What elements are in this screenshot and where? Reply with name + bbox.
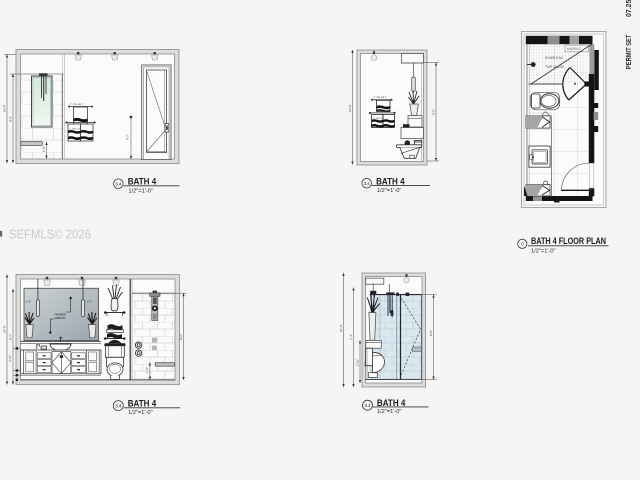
svg-text:BATH 4: BATH 4 bbox=[128, 399, 157, 409]
svg-text:8'-0": 8'-0" bbox=[429, 330, 433, 336]
svg-text:1/2"=1'-0": 1/2"=1'-0" bbox=[128, 410, 153, 416]
svg-text:2" TWL BR 2": 2" TWL BR 2" bbox=[70, 104, 84, 106]
svg-text:MARBLE: MARBLE bbox=[567, 47, 582, 51]
svg-text:2" TWL 24": 2" TWL 24" bbox=[70, 128, 81, 130]
svg-text:BATH 4 FLOOR PLAN: BATH 4 FLOOR PLAN bbox=[531, 236, 606, 246]
svg-text:MIRROR: MIRROR bbox=[55, 316, 66, 320]
svg-text:1/2"=1'-0": 1/2"=1'-0" bbox=[377, 188, 402, 194]
svg-text:1'-0": 1'-0" bbox=[26, 300, 31, 304]
svg-text:10'-0": 10'-0" bbox=[3, 325, 7, 333]
svg-text:1'-0": 1'-0" bbox=[87, 300, 92, 304]
svg-text:2'-10": 2'-10" bbox=[8, 355, 12, 362]
svg-text:2'-10": 2'-10" bbox=[356, 359, 360, 366]
svg-text:10'-0": 10'-0" bbox=[348, 104, 352, 112]
svg-text:1'-6": 1'-6" bbox=[42, 146, 46, 152]
svg-text:4'-2": 4'-2" bbox=[125, 134, 129, 140]
svg-text:8'-2": 8'-2" bbox=[179, 334, 183, 340]
svg-text:07.25.25: 07.25.25 bbox=[624, 0, 633, 17]
svg-text:8'-0": 8'-0" bbox=[9, 116, 13, 122]
svg-text:BATH 4: BATH 4 bbox=[128, 177, 157, 187]
svg-text:3.4: 3.4 bbox=[364, 403, 371, 408]
svg-text:3.4: 3.4 bbox=[115, 182, 122, 187]
svg-text:SHWR ENC: SHWR ENC bbox=[545, 56, 564, 60]
svg-text:10'-0": 10'-0" bbox=[3, 104, 7, 112]
svg-text:1'-6": 1'-6" bbox=[145, 367, 149, 373]
svg-text:7'-4": 7'-4" bbox=[349, 334, 353, 340]
svg-text:1/2"=1'-0": 1/2"=1'-0" bbox=[128, 188, 153, 194]
svg-text:3.4: 3.4 bbox=[115, 403, 122, 408]
svg-text:BATH 4: BATH 4 bbox=[376, 176, 405, 186]
svg-text:8'-2": 8'-2" bbox=[9, 334, 13, 340]
svg-text:2" TWL BR 2": 2" TWL BR 2" bbox=[374, 97, 388, 99]
svg-text:SEFMLS© 2026: SEFMLS© 2026 bbox=[9, 226, 91, 241]
svg-text:2'-6": 2'-6" bbox=[363, 361, 367, 367]
svg-text:PERMIT SET: PERMIT SET bbox=[624, 34, 633, 69]
svg-text:1/2"=1'-0": 1/2"=1'-0" bbox=[531, 248, 556, 254]
svg-text:8'-0": 8'-0" bbox=[432, 109, 436, 115]
svg-text:1/2"=1'-0": 1/2"=1'-0" bbox=[377, 409, 402, 415]
svg-text:10'-0": 10'-0" bbox=[339, 324, 343, 332]
svg-text:3.4: 3.4 bbox=[364, 181, 371, 186]
